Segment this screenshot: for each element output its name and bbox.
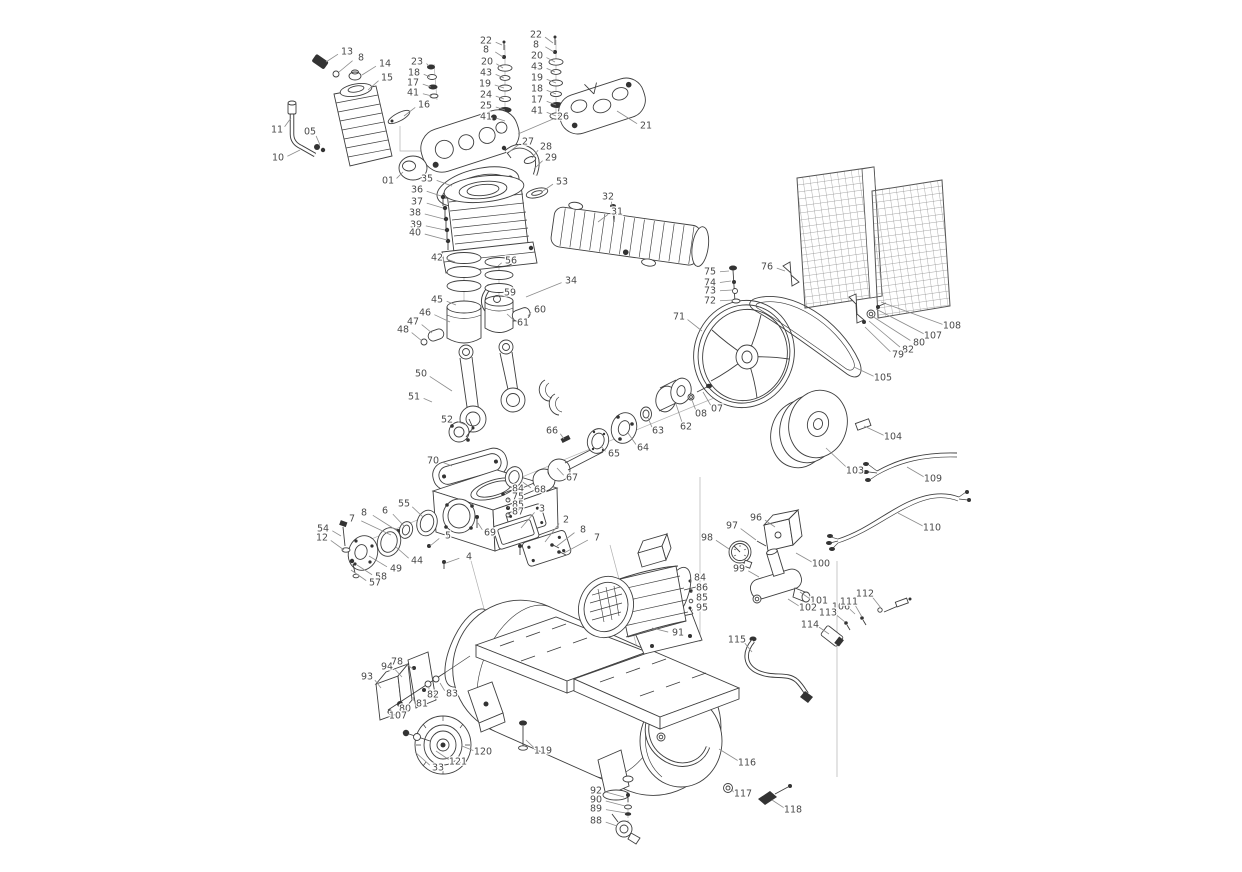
part-number-label: 28: [540, 142, 552, 153]
part-number-label: 64: [637, 443, 649, 454]
part-number-label: 83: [446, 689, 458, 700]
leader-line: [362, 66, 376, 75]
part-number-label: 67: [566, 473, 578, 484]
part-number-label: 51: [408, 392, 420, 403]
leader-line: [850, 609, 855, 614]
part-number-label: 68: [534, 485, 546, 496]
leader-line: [748, 571, 759, 577]
leader-line: [788, 599, 799, 606]
part-number-label: 19: [479, 79, 491, 90]
part-number-label: 7: [349, 514, 355, 525]
leader-line: [720, 300, 733, 301]
part-number-label: 4: [466, 552, 472, 563]
part-number-label: 6: [382, 506, 388, 517]
part-number-label: 40: [409, 228, 421, 239]
part-number-label: 49: [390, 564, 402, 575]
part-number-label: 78: [391, 657, 403, 668]
leader-line: [446, 558, 459, 563]
part-number-label: 82: [427, 690, 439, 701]
motor-pulley: [764, 384, 871, 474]
part-number-label: 89: [590, 804, 602, 815]
leader-line: [396, 547, 409, 558]
part-number-label: 35: [421, 174, 433, 185]
part-number-label: 23: [411, 57, 423, 68]
part-number-label: 20: [531, 51, 543, 62]
leader-line: [907, 467, 924, 477]
head-top-plate: [552, 68, 650, 139]
part-number-label: 29: [545, 153, 557, 164]
part-number-label: 46: [419, 308, 431, 319]
part-number-label: 08: [695, 409, 707, 420]
drain-valve-group: [612, 793, 640, 844]
leader-line: [865, 327, 890, 352]
part-number-label: 8: [580, 525, 586, 536]
part-number-label: 72: [704, 296, 716, 307]
leader-line: [837, 615, 845, 622]
part-number-label: 18: [531, 84, 543, 95]
part-number-label: 60: [534, 305, 546, 316]
part-number-label: 8: [483, 45, 489, 56]
part-number-label: 24: [480, 90, 492, 101]
part-number-label: 115: [728, 635, 746, 646]
part-number-label: 121: [449, 757, 467, 768]
belt-guard: [783, 167, 950, 324]
part-number-label: 44: [411, 556, 423, 567]
part-number-label: 66: [546, 426, 558, 437]
leader-line: [495, 52, 503, 57]
part-number-label: 32: [602, 192, 614, 203]
leader-line: [430, 538, 439, 546]
part-number-label: 79: [892, 350, 904, 361]
part-number-label: 15: [381, 73, 393, 84]
part-number-label: 80: [913, 338, 925, 349]
pressure-switch-assembly: [729, 510, 912, 703]
leader-line: [720, 271, 729, 272]
part-number-label: 112: [856, 589, 874, 600]
leader-line: [796, 553, 812, 562]
part-number-label: 99: [733, 564, 745, 575]
part-number-label: 70: [427, 456, 439, 467]
exploded-parts-diagram: 1381415110510160123181741228204319242541…: [0, 0, 1242, 872]
part-number-label: 59: [504, 288, 516, 299]
part-number-label: 69: [484, 528, 496, 539]
part-number-label: 8: [358, 53, 364, 64]
part-number-label: 110: [923, 523, 941, 534]
part-number-label: 119: [534, 746, 552, 757]
part-number-label: 5: [445, 531, 451, 542]
part-number-label: 81: [416, 699, 428, 710]
part-number-label: 27: [522, 137, 534, 148]
check-valve: [820, 625, 845, 648]
leader-line: [326, 54, 338, 62]
part-number-label: 113: [819, 608, 837, 619]
part-number-label: 07: [711, 404, 723, 415]
diagram-page: 1381415110510160123181741228204319242541…: [0, 0, 1242, 872]
leader-line: [339, 61, 353, 72]
part-number-label: 62: [680, 422, 692, 433]
leader-line: [719, 749, 738, 761]
part-number-label: 42: [431, 253, 443, 264]
part-number-label: 120: [474, 747, 492, 758]
leader-line: [606, 801, 625, 806]
leader-line: [518, 119, 554, 134]
part-number-label: 12: [316, 533, 328, 544]
leader-line: [545, 47, 554, 52]
part-number-label: 33: [432, 763, 444, 774]
leader-line: [606, 822, 617, 826]
leader-line: [826, 448, 847, 468]
leader-line: [864, 426, 884, 435]
part-number-label: 37: [411, 197, 423, 208]
part-number-label: 7: [594, 533, 600, 544]
part-number-label: 71: [673, 312, 685, 323]
leader-line: [427, 203, 443, 208]
leader-line: [777, 268, 785, 271]
part-number-label: 75: [704, 267, 716, 278]
leader-line: [425, 214, 444, 219]
part-number-label: 41: [480, 112, 492, 123]
part-number-label: 10: [272, 153, 284, 164]
part-number-label: 19: [531, 73, 543, 84]
leader-line: [688, 320, 702, 331]
leader-line: [440, 683, 445, 691]
part-number-label: 107: [924, 331, 942, 342]
part-number-label: 96: [750, 513, 762, 524]
part-number-label: 114: [801, 620, 819, 631]
leader-line: [412, 507, 423, 517]
part-number-label: 109: [924, 474, 942, 485]
part-number-label: 13: [341, 47, 353, 58]
part-number-label: 98: [701, 533, 713, 544]
cylinder-head: [288, 54, 392, 166]
part-number-label: 8: [533, 40, 539, 51]
leader-line: [720, 281, 731, 283]
part-number-label: 105: [874, 373, 892, 384]
part-number-label: 97: [726, 521, 738, 532]
leader-line: [426, 226, 445, 230]
part-number-label: 117: [734, 789, 752, 800]
part-number-label: 36: [411, 185, 423, 196]
leader-line: [869, 321, 900, 347]
part-number-label: 103: [846, 466, 864, 477]
part-number-label: 76: [761, 262, 773, 273]
leader-line: [606, 810, 626, 813]
part-number-label: 52: [441, 415, 453, 426]
part-number-label: 50: [415, 369, 427, 380]
part-number-label: 26: [557, 112, 569, 123]
part-number-label: 14: [379, 59, 391, 70]
leader-line: [425, 234, 447, 240]
part-number-label: 3: [539, 504, 545, 515]
leader-line: [854, 367, 874, 376]
part-number-label: 21: [640, 121, 652, 132]
aftercooler: [549, 200, 712, 274]
part-number-label: 16: [418, 100, 430, 111]
part-number-label: 116: [738, 758, 756, 769]
leader-line: [287, 150, 300, 156]
part-number-label: 45: [431, 295, 443, 306]
leader-line: [331, 540, 344, 550]
part-number-label: 34: [565, 276, 577, 287]
part-number-label: 100: [812, 559, 830, 570]
leader-line: [720, 290, 732, 291]
part-number-label: 56: [505, 256, 517, 267]
leader-line: [898, 513, 923, 526]
leader-line: [393, 514, 404, 526]
part-number-label: 102: [799, 603, 817, 614]
part-number-label: 11: [271, 125, 283, 136]
part-number-label: 31: [611, 207, 623, 218]
leader-line: [424, 398, 432, 402]
leader-line: [430, 376, 452, 391]
part-number-label: 87: [512, 507, 524, 518]
part-number-label: 8: [361, 508, 367, 519]
part-number-label: 118: [784, 805, 802, 816]
part-number-label: 88: [590, 816, 602, 827]
crankshaft-assembly: [503, 376, 712, 496]
part-number-label: 25: [480, 101, 492, 112]
leader-line: [716, 540, 729, 549]
part-number-label: 53: [556, 177, 568, 188]
part-number-label: 38: [409, 208, 421, 219]
leader-line: [412, 333, 422, 341]
part-number-label: 43: [531, 62, 543, 73]
part-number-label: 104: [884, 432, 902, 443]
part-number-label: 108: [943, 321, 961, 332]
part-number-label: 01: [382, 176, 394, 187]
part-number-label: 05: [304, 127, 316, 138]
part-number-label: 107: [389, 711, 407, 722]
leader-line: [316, 136, 320, 145]
part-number-label: 95: [696, 603, 708, 614]
leader-line: [361, 521, 391, 535]
part-number-label: 17: [531, 95, 543, 106]
flywheel: [561, 266, 809, 444]
part-number-label: 93: [361, 672, 373, 683]
leader-line: [741, 529, 756, 540]
part-number-label: 61: [517, 318, 529, 329]
part-number-label: 43: [480, 68, 492, 79]
part-number-label: 65: [608, 449, 620, 460]
part-number-label: 63: [652, 426, 664, 437]
leader-line: [332, 531, 341, 536]
part-number-label: 41: [407, 88, 419, 99]
part-number-label: 48: [397, 325, 409, 336]
leader-line: [772, 800, 784, 808]
leader-line: [422, 325, 432, 333]
leader-line: [496, 42, 502, 45]
valve-plate: [416, 105, 525, 178]
leader-line: [526, 283, 562, 297]
part-number-label: 2: [563, 515, 569, 526]
part-number-label: 91: [672, 628, 684, 639]
part-number-label: 20: [481, 57, 493, 68]
part-number-label: 41: [531, 106, 543, 117]
leader-line: [545, 37, 553, 43]
part-number-label: 55: [398, 499, 410, 510]
part-number-label: 57: [369, 578, 381, 589]
